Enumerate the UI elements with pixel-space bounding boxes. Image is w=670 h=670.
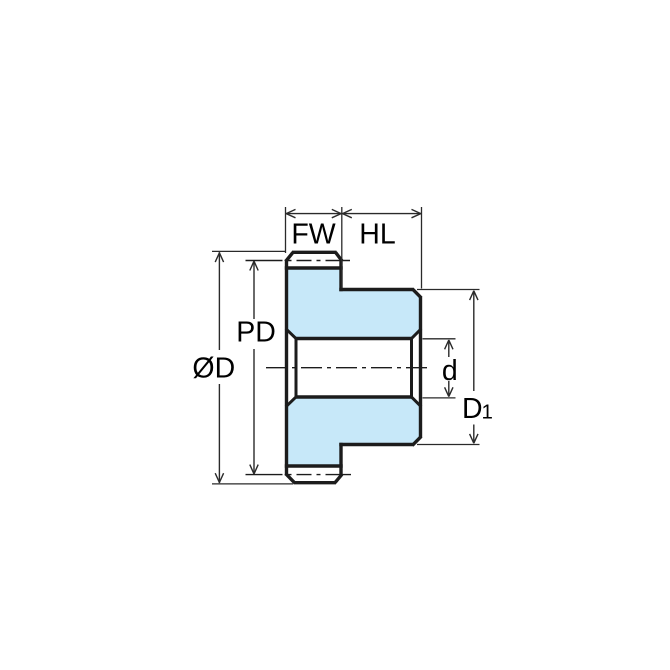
svg-text:d: d (442, 355, 458, 387)
svg-text:HL: HL (359, 219, 395, 251)
svg-text:PD: PD (236, 317, 276, 349)
svg-text:FW: FW (291, 219, 335, 251)
svg-text:ØD: ØD (192, 353, 235, 385)
svg-text:1: 1 (482, 401, 493, 424)
svg-text:D: D (462, 393, 483, 425)
